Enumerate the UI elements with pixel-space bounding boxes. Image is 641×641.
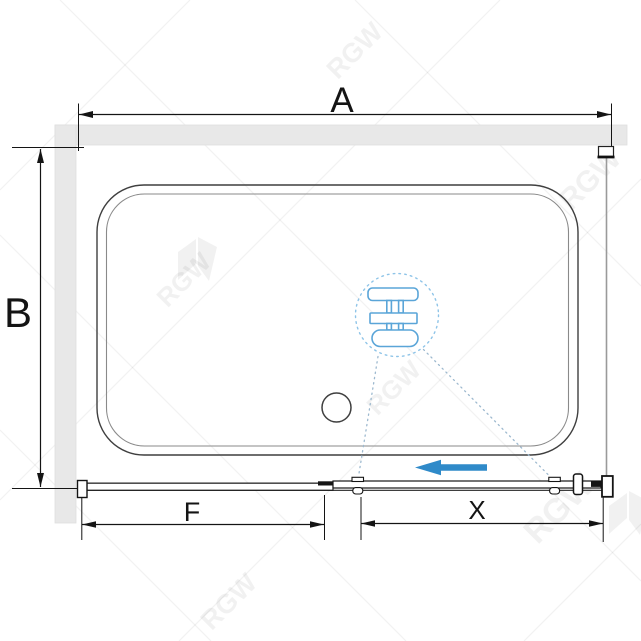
arrowhead-left-icon <box>79 111 93 118</box>
shower-tray <box>97 185 578 455</box>
dimension-A-label: A <box>330 81 354 120</box>
fixed-glass-panel <box>87 483 333 490</box>
watermark-logo-icon <box>609 491 641 535</box>
arrowhead-right-icon <box>310 521 324 528</box>
right-wall-profile <box>602 476 613 497</box>
arrowhead-left-icon <box>361 520 375 527</box>
watermark-text: RGW <box>361 354 427 420</box>
arrow-left-icon <box>415 460 487 475</box>
door-magnet-strip <box>591 481 602 487</box>
plan-view-diagram: RGW RGW RGW RGW RGW RGW <box>0 0 641 641</box>
arrowhead-up-icon <box>37 149 44 163</box>
watermark-text: RGW <box>553 141 629 217</box>
door-handle <box>574 474 583 495</box>
dimension-B-label: B <box>4 289 32 336</box>
arrowhead-down-icon <box>37 473 44 487</box>
left-wall-profile <box>78 481 88 498</box>
panel-overlap-bracket <box>318 481 333 485</box>
technical-drawing-canvas: RGW RGW RGW RGW RGW RGW <box>0 0 641 641</box>
watermark-diagonal-line <box>0 0 190 190</box>
left-wall <box>55 125 76 523</box>
watermark-layer: RGW RGW RGW RGW RGW RGW <box>0 0 641 641</box>
arrowhead-right-icon <box>589 520 603 527</box>
watermark-diagonal-line <box>179 179 641 641</box>
arrowhead-right-icon <box>597 111 611 118</box>
dimension-F-label: F <box>184 497 201 527</box>
top-wall <box>55 125 627 145</box>
watermark-text: RGW <box>195 567 263 635</box>
arrowhead-left-icon <box>82 521 96 528</box>
door-assembly <box>78 474 613 498</box>
dimension-X-label: X <box>468 495 485 525</box>
drain-circle-icon <box>322 393 351 422</box>
watermark-text: RGW <box>321 16 389 84</box>
side-panel-wall-bracket <box>598 147 615 158</box>
watermark-diagonal-line <box>0 430 211 641</box>
detail-leader-line-right <box>424 350 551 478</box>
dimension-F: F <box>82 495 325 540</box>
